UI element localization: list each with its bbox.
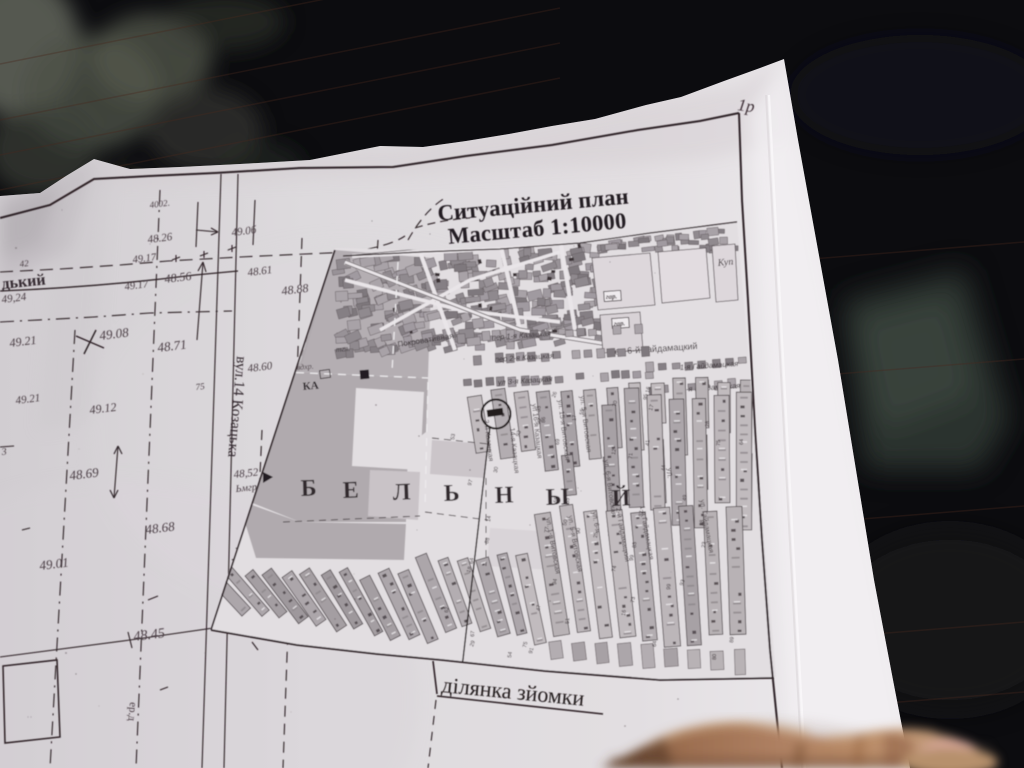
svg-text:30: 30 — [493, 466, 500, 473]
svg-text:16: 16 — [621, 609, 628, 616]
svg-text:83: 83 — [632, 542, 638, 548]
svg-text:95: 95 — [643, 394, 649, 401]
svg-text:Й: Й — [611, 485, 631, 512]
svg-text:КА: КА — [302, 380, 319, 393]
svg-text:17: 17 — [572, 415, 578, 421]
svg-text:Куп: Куп — [716, 256, 734, 269]
svg-text:тгл.: тгл. — [335, 344, 350, 354]
svg-text:14: 14 — [486, 515, 493, 522]
svg-text:Ьмгр: Ьмгр — [234, 482, 257, 495]
svg-text:51: 51 — [565, 618, 571, 624]
svg-text:53: 53 — [450, 433, 457, 440]
svg-text:73: 73 — [630, 596, 637, 603]
svg-text:71: 71 — [628, 453, 634, 460]
svg-text:Ы: Ы — [545, 484, 570, 511]
svg-text:гар.: гар. — [606, 292, 618, 301]
svg-text:Е: Е — [342, 477, 359, 504]
svg-text:64: 64 — [652, 641, 658, 648]
svg-text:54: 54 — [507, 651, 514, 658]
svg-text:69: 69 — [555, 439, 561, 446]
svg-text:47: 47 — [536, 605, 542, 612]
svg-text:86: 86 — [541, 417, 547, 423]
svg-text:28: 28 — [705, 421, 711, 427]
svg-text:49: 49 — [682, 494, 689, 501]
svg-text:41: 41 — [645, 440, 651, 447]
svg-text:89: 89 — [729, 636, 736, 643]
svg-text:12: 12 — [611, 448, 618, 455]
svg-text:16: 16 — [645, 386, 652, 393]
svg-text:вдхр.: вдхр. — [296, 362, 314, 372]
svg-text:99: 99 — [666, 583, 673, 590]
svg-text:94: 94 — [552, 578, 559, 585]
svg-text:Ь: Ь — [443, 480, 460, 507]
svg-text:Л: Л — [392, 479, 411, 506]
svg-text:70: 70 — [612, 400, 619, 407]
svg-text:75: 75 — [195, 381, 206, 392]
svg-text:80: 80 — [712, 654, 718, 660]
svg-text:62: 62 — [444, 606, 451, 613]
svg-text:75: 75 — [716, 440, 722, 446]
svg-text:Б: Б — [300, 475, 317, 502]
svg-text:64: 64 — [739, 439, 745, 445]
svg-text:Н: Н — [494, 482, 514, 509]
svg-text:67: 67 — [470, 631, 477, 638]
svg-text:ер.д: ер.д — [125, 702, 139, 722]
svg-text:42: 42 — [19, 258, 30, 269]
